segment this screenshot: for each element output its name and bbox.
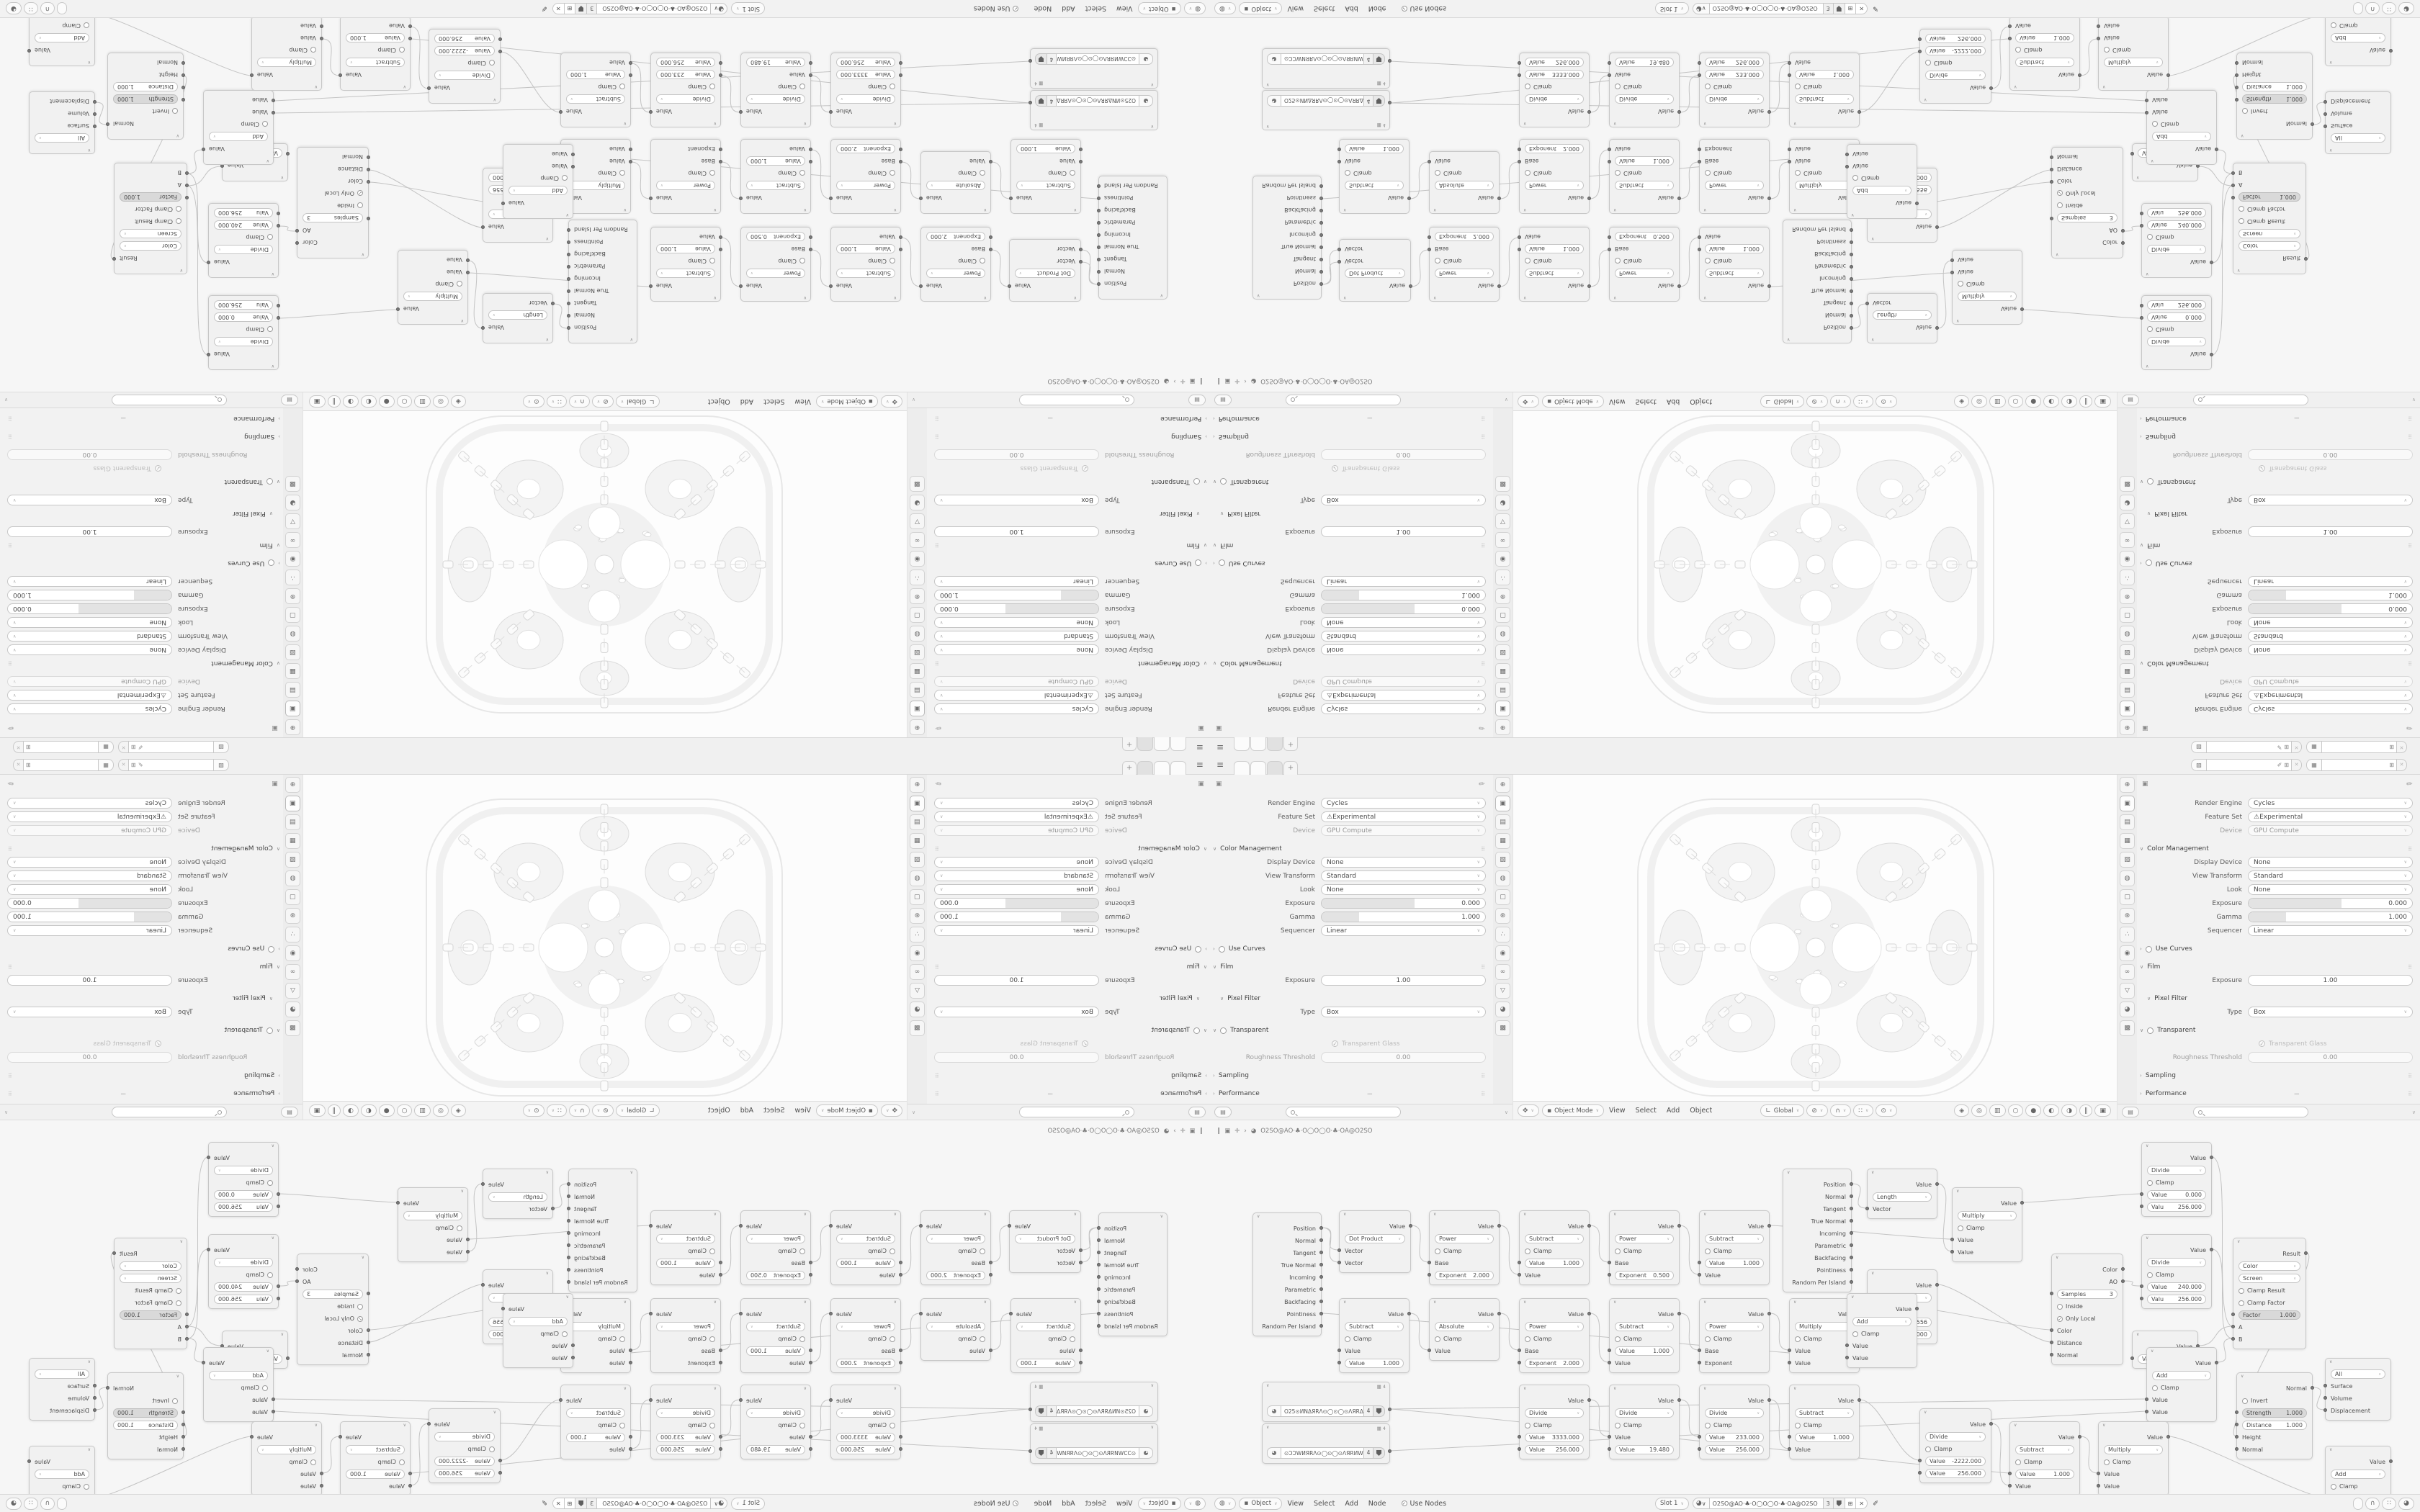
property-field-display-device[interactable]: None∨ bbox=[1321, 644, 1486, 655]
overlays-icon[interactable]: ◕ bbox=[6, 1498, 22, 1510]
property-field-feature-set[interactable]: ⚠ Experimental∨ bbox=[2248, 811, 2413, 822]
input-socket-value[interactable] bbox=[2097, 1484, 2100, 1488]
node-value-field[interactable]: Valu256.000 bbox=[214, 208, 273, 217]
node-value-field[interactable]: Value233.000 bbox=[656, 70, 715, 79]
node-operation-dropdown[interactable]: Power∨ bbox=[1615, 1234, 1674, 1243]
physics-properties-tab-icon[interactable]: ◉ bbox=[910, 945, 925, 961]
node-div19[interactable]: ∨ValueDivide∨ClampValueValue19.480 bbox=[1609, 53, 1680, 127]
input-socket-base[interactable] bbox=[1608, 248, 1611, 251]
toggle-clamp-factor[interactable] bbox=[2238, 207, 2244, 212]
input-socket-value[interactable] bbox=[1788, 1447, 1791, 1451]
output-socket-value[interactable] bbox=[919, 197, 923, 200]
node-value-field[interactable]: Value1.000 bbox=[656, 1259, 715, 1268]
node-value-field[interactable]: Distance1.000 bbox=[113, 82, 178, 91]
input-socket-value[interactable] bbox=[466, 271, 470, 274]
node-operation-dropdown[interactable]: Screen∨ bbox=[2238, 1274, 2300, 1283]
render-properties-tab-icon[interactable]: ▣ bbox=[910, 796, 925, 811]
output-socket-position[interactable] bbox=[1850, 1182, 1853, 1186]
output-socket-parametric[interactable] bbox=[567, 265, 570, 269]
transform-orientation-dropdown[interactable]: ∟Global∨ bbox=[616, 1104, 660, 1117]
empty-circle-icon[interactable] bbox=[2353, 1498, 2363, 1510]
node-group-datablock-field[interactable]: ◕⊙ƆƆWИЯRΛ⊙◯⊙◯⊙ΛЯRИWƆƆ⊙4 bbox=[1267, 53, 1385, 65]
toggle-clamp[interactable] bbox=[1958, 282, 1963, 287]
input-socket-exponent[interactable] bbox=[1518, 148, 1521, 151]
node-sub4[interactable]: ∨ValueSubtract∨ClampValue1.000Value bbox=[1609, 1298, 1680, 1373]
output-socket-value[interactable] bbox=[250, 73, 254, 77]
display-filter-button[interactable]: ▤ bbox=[1214, 1107, 1232, 1117]
node-collapse-chevron-icon[interactable]: ∨ bbox=[1266, 1383, 1269, 1388]
input-socket-factor[interactable] bbox=[185, 1313, 189, 1316]
node-value-field[interactable]: Strength1.000 bbox=[2242, 1408, 2307, 1418]
input-socket-a[interactable] bbox=[185, 184, 189, 187]
node-value-field[interactable]: Exponent2.000 bbox=[926, 1271, 985, 1280]
node-bump[interactable]: ∨NormalInvertStrength1.000Distance1.000H… bbox=[2236, 1372, 2313, 1459]
node-grp1[interactable]: ∨▦ 4◕O25⊙ИNΔЯRΛ⊙◯⊙◯⊙ΛЯRΔNИ⊙25O4 bbox=[1262, 1382, 1390, 1422]
panel-header-color-management[interactable]: ∨Color Management⠿ bbox=[2140, 657, 2413, 670]
empty-circle-icon[interactable] bbox=[57, 1498, 67, 1510]
node-collapse-chevron-icon[interactable]: ∨ bbox=[2329, 60, 2332, 65]
viewport-3d[interactable]: ✥∨▪Object Mode∨ViewSelectAddObject∟Globa… bbox=[302, 392, 907, 737]
input-socket-vector[interactable] bbox=[1079, 260, 1083, 264]
input-socket-exponent[interactable] bbox=[809, 1273, 812, 1277]
node-operation-dropdown[interactable]: Divide∨ bbox=[1705, 1408, 1764, 1418]
shading-material-icon[interactable]: ◐ bbox=[361, 1104, 377, 1117]
node-operation-dropdown[interactable]: Length∨ bbox=[488, 1192, 547, 1202]
toggle-only-local[interactable]: ✓ bbox=[357, 191, 363, 197]
shader-menu-add[interactable]: Add bbox=[1345, 5, 1358, 13]
input-socket-base[interactable] bbox=[1698, 1349, 1701, 1352]
panel-header-sampling[interactable]: ›Sampling⠿ bbox=[2140, 1069, 2413, 1082]
input-socket-distance[interactable] bbox=[2235, 86, 2238, 89]
view-layer-selector[interactable]: ▦⊞✕ bbox=[13, 759, 114, 771]
input-socket-value[interactable] bbox=[1788, 1349, 1791, 1352]
node-value-field[interactable]: Strength1.000 bbox=[113, 94, 178, 104]
property-field-view-transform[interactable]: Standard∨ bbox=[2248, 870, 2413, 881]
output-socket-result[interactable] bbox=[2304, 257, 2308, 261]
panel-header-performance[interactable]: ›Performance≔⠿ bbox=[7, 1087, 280, 1100]
texture-properties-tab-icon[interactable]: ▩ bbox=[1495, 476, 1510, 492]
input-socket-a[interactable] bbox=[2231, 1325, 2235, 1328]
node-sub4[interactable]: ∨ValueSubtract∨ClampValue1.000Value bbox=[1609, 139, 1680, 214]
input-socket-value[interactable] bbox=[1337, 148, 1341, 151]
node-collapse-chevron-icon[interactable]: ∨ bbox=[1851, 212, 1854, 217]
shading-material-icon[interactable]: ◐ bbox=[361, 395, 377, 408]
node-div240[interactable]: ∨ValueDivide∨ClampValue240.000Valu256.00… bbox=[208, 203, 279, 278]
node-collapse-chevron-icon[interactable]: ∨ bbox=[1343, 1212, 1346, 1217]
node-collapse-chevron-icon[interactable]: ∨ bbox=[493, 1410, 496, 1415]
output-socket-ao[interactable] bbox=[2121, 229, 2125, 233]
options-chevron-icon[interactable]: ∨ bbox=[912, 1110, 915, 1115]
node-value-field[interactable]: Value1.000 bbox=[1016, 1359, 1075, 1368]
snap-target-icon[interactable]: ∷∨ bbox=[1853, 1104, 1873, 1117]
output-socket-value[interactable] bbox=[1009, 197, 1013, 200]
property-field-sequencer[interactable]: Linear∨ bbox=[7, 576, 172, 587]
node-operation-dropdown[interactable]: Subtract∨ bbox=[836, 1234, 895, 1243]
output-socket-value[interactable] bbox=[829, 284, 833, 288]
modifiers-properties-tab-icon[interactable]: ⊛ bbox=[1495, 908, 1510, 924]
property-field-exposure[interactable]: 1.00 bbox=[1321, 975, 1486, 986]
panel-header-use-curves[interactable]: ›Use Curves bbox=[934, 557, 1207, 570]
unlink-scene-button[interactable]: ✕ bbox=[118, 741, 128, 753]
output-socket-value[interactable] bbox=[2210, 1248, 2213, 1251]
world-properties-tab-icon[interactable]: ◍ bbox=[285, 870, 300, 886]
output-socket-value[interactable] bbox=[1407, 197, 1411, 200]
property-field-view-transform[interactable]: Standard∨ bbox=[7, 870, 172, 881]
pivot-point-icon[interactable]: ⊙∨ bbox=[1875, 395, 1897, 408]
node-collapse-chevron-icon[interactable]: ∨ bbox=[804, 1212, 807, 1217]
snap-target-icon[interactable]: ∷ bbox=[2382, 1498, 2396, 1510]
node-operation-dropdown[interactable]: Power∨ bbox=[656, 1322, 715, 1331]
panel-header-performance[interactable]: ›Performance≔⠿ bbox=[2140, 412, 2413, 425]
pause-icon[interactable]: ‖ bbox=[2079, 1104, 2093, 1117]
node-sub4[interactable]: ∨ValueSubtract∨ClampValue1.000Value bbox=[740, 1298, 811, 1373]
node-collapse-chevron-icon[interactable]: ∨ bbox=[461, 318, 464, 323]
physics-properties-tab-icon[interactable]: ◉ bbox=[1495, 945, 1510, 961]
node-collapse-chevron-icon[interactable]: ∨ bbox=[2146, 271, 2148, 276]
output-properties-tab-icon[interactable]: ▤ bbox=[910, 814, 925, 830]
output-socket[interactable] bbox=[1028, 59, 1032, 63]
input-socket-value[interactable] bbox=[498, 1471, 502, 1475]
material-datablock-field[interactable]: ◕∨O2SO@AO·♣·O◯O◯O·♣·OA@O2SO3⊞✕ bbox=[1693, 1498, 1868, 1509]
node-collapse-chevron-icon[interactable]: ∨ bbox=[984, 1300, 987, 1305]
node-operation-dropdown[interactable]: Subtract∨ bbox=[346, 58, 405, 67]
node-abs1[interactable]: ∨ValueAbsolute∨ClampValue bbox=[1429, 151, 1500, 214]
input-socket-value[interactable] bbox=[629, 73, 632, 77]
node-value-field[interactable]: Samples3 bbox=[302, 1290, 363, 1299]
viewport-3d[interactable]: ✥∨▪Object Mode∨ViewSelectAddObject∟Globa… bbox=[1512, 775, 2117, 1120]
shader-menu-add[interactable]: Add bbox=[1062, 1500, 1075, 1508]
output-socket-value[interactable] bbox=[1935, 225, 1939, 229]
node-pow1[interactable]: ∨ValuePower∨ClampBaseExponent2.000 bbox=[1429, 227, 1500, 302]
property-field-display-device[interactable]: None∨ bbox=[2248, 857, 2413, 868]
node-group-datablock-field[interactable]: ◕O25⊙ИNΔЯRΛ⊙◯⊙◯⊙ΛЯRΔNИ⊙25O4 bbox=[1267, 95, 1385, 107]
view-layer-name-field[interactable]: ⊞ bbox=[2322, 741, 2397, 753]
input-socket-value[interactable] bbox=[277, 1192, 280, 1196]
input-socket-valu[interactable] bbox=[2130, 152, 2134, 156]
toggle-clamp[interactable] bbox=[709, 1336, 715, 1342]
node-collapse-chevron-icon[interactable]: ∨ bbox=[2146, 1143, 2148, 1148]
node-collapse-chevron-icon[interactable]: ∨ bbox=[1703, 207, 1706, 212]
input-socket-strength[interactable] bbox=[181, 98, 185, 102]
output-socket-normal[interactable] bbox=[1097, 270, 1101, 274]
input-socket-value[interactable] bbox=[1518, 61, 1521, 65]
particles-properties-tab-icon[interactable]: ∴ bbox=[285, 927, 300, 942]
panel-header-transparent[interactable]: ∨Transparent bbox=[1213, 475, 1486, 488]
node-collapse-chevron-icon[interactable]: ∨ bbox=[2056, 252, 2058, 257]
property-field-feature-set[interactable]: ⚠ Experimental∨ bbox=[1321, 811, 1486, 822]
toggle-clamp[interactable] bbox=[1615, 84, 1621, 90]
options-chevron-icon[interactable]: ∨ bbox=[2412, 397, 2416, 403]
toggle-clamp[interactable] bbox=[1615, 1336, 1621, 1342]
node-sub5[interactable]: ∨ValueSubtract∨ClampValue1.000Value bbox=[1789, 1385, 1860, 1459]
input-socket-value[interactable] bbox=[408, 37, 412, 40]
node-operation-dropdown[interactable]: Divide∨ bbox=[1615, 1408, 1674, 1418]
xray-icon[interactable]: ▥ bbox=[1989, 1104, 2006, 1117]
output-socket-value[interactable] bbox=[829, 197, 833, 200]
toggle-clamp[interactable] bbox=[1705, 84, 1711, 90]
transform-orientation-dropdown[interactable]: ∟Global∨ bbox=[616, 395, 660, 408]
node-collapse-chevron-icon[interactable]: ∨ bbox=[461, 1189, 464, 1194]
input-socket-exponent[interactable] bbox=[809, 235, 812, 239]
property-field-sequencer[interactable]: Linear∨ bbox=[934, 576, 1099, 587]
node-sub6[interactable]: ∨ValueSubtract∨ClampValue1.000Value bbox=[2009, 16, 2080, 91]
material-slot-dropdown[interactable]: Slot 1∨ bbox=[1655, 1498, 1689, 1510]
material-icon-button[interactable]: ◕∨ bbox=[1693, 3, 1710, 14]
node-operation-dropdown[interactable]: Power∨ bbox=[1525, 1322, 1584, 1331]
property-field-display-device[interactable]: None∨ bbox=[2248, 644, 2413, 655]
toggle-clamp[interactable] bbox=[980, 258, 985, 264]
node-value-field[interactable]: Exponent2.000 bbox=[1435, 1271, 1494, 1280]
material-icon-button[interactable]: ◕∨ bbox=[710, 1498, 727, 1509]
node-value-field[interactable]: Factor1.000 bbox=[120, 192, 181, 202]
input-socket-displacement[interactable] bbox=[2323, 100, 2327, 104]
output-socket-ao[interactable] bbox=[2121, 1279, 2125, 1283]
use-nodes-checkbox[interactable]: ✓Use Nodes bbox=[974, 5, 1019, 13]
node-value-field[interactable]: Value1.000 bbox=[2015, 1470, 2074, 1479]
node-operation-dropdown[interactable]: Screen∨ bbox=[2238, 229, 2300, 238]
shading-wireframe-icon[interactable]: ○ bbox=[397, 395, 413, 408]
input-socket-value[interactable] bbox=[498, 50, 502, 53]
input-socket-value[interactable] bbox=[320, 1484, 323, 1488]
node-value-field[interactable]: Value1.000 bbox=[1615, 156, 1674, 166]
node-divm2222[interactable]: ∨ValueDivide∨ClampValue-2222.000Value256… bbox=[1919, 29, 1991, 104]
node-collapse-chevron-icon[interactable]: ∨ bbox=[1703, 121, 1706, 126]
input-socket-base[interactable] bbox=[719, 1349, 722, 1352]
render-view-icon[interactable]: ▣ bbox=[2094, 1104, 2111, 1117]
input-socket-exponent[interactable] bbox=[989, 235, 992, 239]
output-socket-value[interactable] bbox=[739, 197, 743, 200]
input-socket-value[interactable] bbox=[1918, 1471, 1922, 1475]
node-value-field[interactable]: Exponent0.500 bbox=[746, 232, 805, 241]
property-field-render-engine[interactable]: Cycles∨ bbox=[1321, 798, 1486, 809]
material-sphere-icon[interactable]: ◕ bbox=[1139, 53, 1153, 65]
node-value-field[interactable]: Factor1.000 bbox=[120, 1310, 181, 1320]
node-div240[interactable]: ∨ValueDivide∨ClampValue240.000Valu256.00… bbox=[208, 1234, 279, 1309]
object-properties-tab-icon[interactable]: ▢ bbox=[2120, 607, 2135, 623]
node-bump[interactable]: ∨NormalInvertStrength1.000Distance1.000H… bbox=[107, 53, 184, 140]
render-properties-tab-icon[interactable]: ▣ bbox=[1495, 701, 1510, 716]
node-value-field[interactable]: Value256.000 bbox=[656, 58, 715, 67]
properties-search-input[interactable] bbox=[1019, 1107, 1134, 1117]
use-nodes-checkbox[interactable]: ✓Use Nodes bbox=[1402, 5, 1447, 13]
input-socket-value[interactable] bbox=[1918, 37, 1922, 41]
node-operation-dropdown[interactable]: Subtract∨ bbox=[1615, 181, 1674, 190]
property-field-gamma[interactable]: 1.000 bbox=[2248, 912, 2413, 922]
input-socket-value[interactable] bbox=[1608, 160, 1611, 163]
node-value-field[interactable]: Value256.000 bbox=[1705, 1445, 1764, 1454]
modifiers-properties-tab-icon[interactable]: ⊛ bbox=[285, 908, 300, 924]
node-geo2[interactable]: ∨PositionNormalTangentTrue NormalIncomin… bbox=[1783, 220, 1852, 343]
output-socket-value[interactable] bbox=[27, 49, 31, 53]
node-pow1[interactable]: ∨ValuePower∨ClampBaseExponent2.000 bbox=[920, 227, 991, 302]
input-socket-surface[interactable] bbox=[93, 1384, 97, 1387]
node-collapse-chevron-icon[interactable]: ∨ bbox=[1793, 1300, 1796, 1305]
panel-checkbox[interactable] bbox=[2147, 1027, 2154, 1034]
input-socket-base[interactable] bbox=[1608, 1261, 1611, 1264]
node-operation-dropdown[interactable]: Subtract∨ bbox=[1345, 1322, 1404, 1331]
checkbox-row[interactable]: ✓Transparent Glass bbox=[1020, 465, 1088, 472]
node-len[interactable]: ∨ValueLength∨Vector bbox=[1867, 1169, 1937, 1219]
panel-header-transparent[interactable]: ∨Transparent bbox=[7, 1024, 280, 1037]
output-socket-incoming[interactable] bbox=[1319, 233, 1323, 237]
copy-material-button[interactable]: ⊞ bbox=[564, 3, 575, 14]
view-layer-icon[interactable]: ▦ bbox=[2306, 741, 2322, 753]
panel-header-color-management[interactable]: ∨Color Management⠿ bbox=[1213, 657, 1486, 670]
output-socket-random-per-island[interactable] bbox=[1850, 1280, 1853, 1284]
node-operation-dropdown[interactable]: Color∨ bbox=[2238, 1261, 2300, 1271]
view-layer-properties-tab-icon[interactable]: ▦ bbox=[285, 663, 300, 679]
toggle-clamp[interactable] bbox=[1525, 171, 1531, 176]
data-properties-tab-icon[interactable]: ▽ bbox=[285, 513, 300, 529]
toggle-clamp[interactable] bbox=[799, 258, 805, 264]
node-add2[interactable]: ∨ValueAdd∨ClampValueValue bbox=[2146, 90, 2217, 165]
toggle-clamp[interactable] bbox=[267, 327, 273, 333]
node-collapse-chevron-icon[interactable]: ∨ bbox=[1266, 82, 1269, 87]
toggle-clamp[interactable] bbox=[709, 171, 715, 176]
input-socket-value[interactable] bbox=[1608, 1361, 1611, 1364]
mode-dropdown[interactable]: ▪Object Mode∨ bbox=[816, 395, 878, 408]
output-socket-value[interactable] bbox=[1587, 284, 1591, 288]
node-value-field[interactable]: Distance1.000 bbox=[2242, 82, 2307, 91]
constraints-properties-tab-icon[interactable]: ∞ bbox=[910, 964, 925, 980]
panel-header-film[interactable]: ∨Film⠿ bbox=[2140, 539, 2413, 552]
toggle-clamp[interactable] bbox=[562, 1331, 568, 1337]
node-value-field[interactable]: Value0.000 bbox=[2147, 312, 2206, 322]
scene-selector[interactable]: ▧✐⊞✕ bbox=[118, 741, 229, 753]
physics-properties-tab-icon[interactable]: ◉ bbox=[285, 945, 300, 961]
output-socket-backfacing[interactable] bbox=[1319, 209, 1323, 212]
toggle-clamp[interactable] bbox=[1435, 258, 1440, 264]
panel-header-sampling[interactable]: ›Sampling⠿ bbox=[934, 1069, 1207, 1082]
property-field-sequencer[interactable]: Linear∨ bbox=[1321, 576, 1486, 587]
input-socket-b[interactable] bbox=[2231, 1337, 2235, 1341]
input-socket-value[interactable] bbox=[1788, 148, 1791, 151]
node-collapse-chevron-icon[interactable]: ∨ bbox=[894, 207, 897, 212]
node-operation-dropdown[interactable]: Divide∨ bbox=[836, 94, 895, 104]
fake-user-shield-button[interactable] bbox=[575, 1498, 586, 1509]
toggle-clamp[interactable] bbox=[1525, 258, 1531, 264]
input-socket-value[interactable] bbox=[1788, 73, 1791, 77]
node-div240[interactable]: ∨ValueDivide∨ClampValue240.000Valu256.00… bbox=[2141, 1234, 2212, 1309]
output-socket-incoming[interactable] bbox=[567, 1231, 570, 1235]
toggle-clamp[interactable] bbox=[709, 84, 715, 90]
node-collapse-chevron-icon[interactable]: ∨ bbox=[1924, 97, 1927, 102]
node-collapse-chevron-icon[interactable]: ∨ bbox=[804, 1300, 807, 1305]
constraints-properties-tab-icon[interactable]: ∞ bbox=[1495, 532, 1510, 548]
node-collapse-chevron-icon[interactable]: ∨ bbox=[546, 1271, 549, 1276]
input-socket-base[interactable] bbox=[1698, 160, 1701, 163]
shader-type-dropdown[interactable]: ▪Object∨ bbox=[1138, 1498, 1181, 1510]
input-socket-base[interactable] bbox=[809, 248, 812, 251]
input-socket-value[interactable] bbox=[1918, 1459, 1922, 1462]
toggle-clamp[interactable] bbox=[2015, 48, 2021, 53]
node-operation-dropdown[interactable]: Add∨ bbox=[2331, 33, 2385, 42]
property-field-sequencer[interactable]: Linear∨ bbox=[2248, 925, 2413, 936]
node-value-field[interactable]: Valu256.000 bbox=[2147, 300, 2206, 310]
input-socket-value[interactable] bbox=[320, 37, 323, 40]
modifiers-properties-tab-icon[interactable]: ⊛ bbox=[910, 908, 925, 924]
input-socket-value[interactable] bbox=[1950, 271, 1954, 274]
constraints-properties-tab-icon[interactable]: ∞ bbox=[2120, 964, 2135, 980]
output-socket-color[interactable] bbox=[2121, 1267, 2125, 1271]
material-slot-dropdown[interactable]: Slot 1∨ bbox=[1655, 3, 1689, 15]
node-collapse-chevron-icon[interactable]: ∨ bbox=[894, 1212, 897, 1217]
panel-checkbox[interactable] bbox=[266, 1027, 273, 1034]
toggle-clamp[interactable] bbox=[1958, 1225, 1963, 1231]
node-collapse-chevron-icon[interactable]: ∨ bbox=[2102, 1423, 2105, 1428]
output-socket-random-per-island[interactable] bbox=[567, 228, 570, 232]
output-socket-value[interactable] bbox=[1587, 1312, 1591, 1315]
input-socket-value[interactable] bbox=[466, 1238, 470, 1241]
snap-target-icon[interactable]: ∷∨ bbox=[1853, 395, 1873, 408]
unlink-material-button[interactable]: ✕ bbox=[552, 3, 564, 14]
checkbox-row[interactable]: ✓Transparent Glass bbox=[1332, 1040, 1400, 1048]
workspace-tab-3[interactable] bbox=[1267, 737, 1283, 751]
shader-type-dropdown[interactable]: ▪Object∨ bbox=[1239, 3, 1282, 15]
shader-type-dropdown[interactable]: ▪Object∨ bbox=[1239, 1498, 1282, 1510]
output-socket-result[interactable] bbox=[112, 257, 116, 261]
node-operation-dropdown[interactable]: Subtract∨ bbox=[1016, 181, 1075, 190]
node-collapse-chevron-icon[interactable]: ∨ bbox=[180, 268, 183, 273]
input-socket-surface[interactable] bbox=[2323, 1384, 2327, 1387]
property-field-device[interactable]: GPU Compute∨ bbox=[7, 825, 172, 836]
node-value-field[interactable]: Value256.000 bbox=[1925, 34, 1986, 43]
panel-header-performance[interactable]: ›Performance≔⠿ bbox=[1213, 1087, 1486, 1100]
options-chevron-icon[interactable]: ∨ bbox=[912, 397, 915, 403]
panel-header-performance[interactable]: ›Performance≔⠿ bbox=[1213, 412, 1486, 425]
node-div0[interactable]: ∨ValueDivide∨ClampValue0.000Valu256.000 bbox=[208, 295, 279, 370]
hamburger-icon[interactable]: ≡ bbox=[1196, 742, 1204, 752]
input-socket-value[interactable] bbox=[2140, 224, 2143, 228]
input-socket-value[interactable] bbox=[1698, 1447, 1701, 1451]
property-field-view-transform[interactable]: Standard∨ bbox=[1321, 631, 1486, 642]
input-socket-base[interactable] bbox=[899, 1349, 902, 1352]
input-socket-vector[interactable] bbox=[1079, 1248, 1083, 1252]
workspace-tab-3[interactable] bbox=[1137, 761, 1153, 775]
input-socket-value[interactable] bbox=[2097, 24, 2100, 28]
output-socket[interactable] bbox=[1028, 1408, 1032, 1411]
node-operation-dropdown[interactable]: Screen∨ bbox=[120, 229, 181, 238]
toggle-clamp[interactable] bbox=[489, 60, 495, 66]
node-div3333[interactable]: ∨ValueDivide∨ClampValue3333.000Value256.… bbox=[1519, 1385, 1590, 1459]
shader-editor-type-button[interactable]: ◍∨ bbox=[1184, 1498, 1206, 1510]
node-pow4[interactable]: ∨ValuePower∨ClampBaseExponent bbox=[650, 139, 721, 214]
output-socket-value[interactable] bbox=[1497, 284, 1501, 288]
output-socket-tangent[interactable] bbox=[567, 302, 570, 305]
node-out[interactable]: ∨All∨SurfaceVolumeDisplacement bbox=[2325, 91, 2391, 154]
node-collapse-chevron-icon[interactable]: ∨ bbox=[1703, 1386, 1706, 1391]
output-socket-position[interactable] bbox=[1319, 282, 1323, 286]
node-value-field[interactable]: Value1.000 bbox=[346, 1470, 405, 1479]
modifiers-properties-tab-icon[interactable]: ⊛ bbox=[1495, 588, 1510, 604]
node-operation-dropdown[interactable]: Subtract∨ bbox=[1345, 181, 1404, 190]
input-socket-value[interactable] bbox=[1698, 1273, 1701, 1277]
node-pow3[interactable]: ∨ValuePower∨ClampBaseExponent2.000 bbox=[1519, 139, 1590, 214]
node-operation-dropdown[interactable]: Power∨ bbox=[746, 269, 805, 278]
node-sub3[interactable]: ∨ValueSubtract∨ClampValueValue1.000 bbox=[1339, 139, 1410, 214]
workspace-tab-1[interactable] bbox=[1170, 761, 1186, 775]
shader-menu-select[interactable]: Select bbox=[1314, 1500, 1335, 1508]
panel-checkbox[interactable] bbox=[268, 560, 274, 567]
output-properties-tab-icon[interactable]: ▤ bbox=[285, 814, 300, 830]
node-collapse-chevron-icon[interactable]: ∨ bbox=[315, 1423, 318, 1428]
pin-icon[interactable]: ✐ bbox=[2277, 744, 2282, 750]
output-socket-value[interactable] bbox=[481, 225, 485, 229]
toggle-clamp-factor[interactable] bbox=[2238, 1300, 2244, 1306]
panel-checkbox[interactable] bbox=[2147, 479, 2154, 485]
scene-properties-tab-icon[interactable]: ▧ bbox=[285, 852, 300, 868]
input-socket-exponent[interactable] bbox=[899, 1361, 902, 1364]
